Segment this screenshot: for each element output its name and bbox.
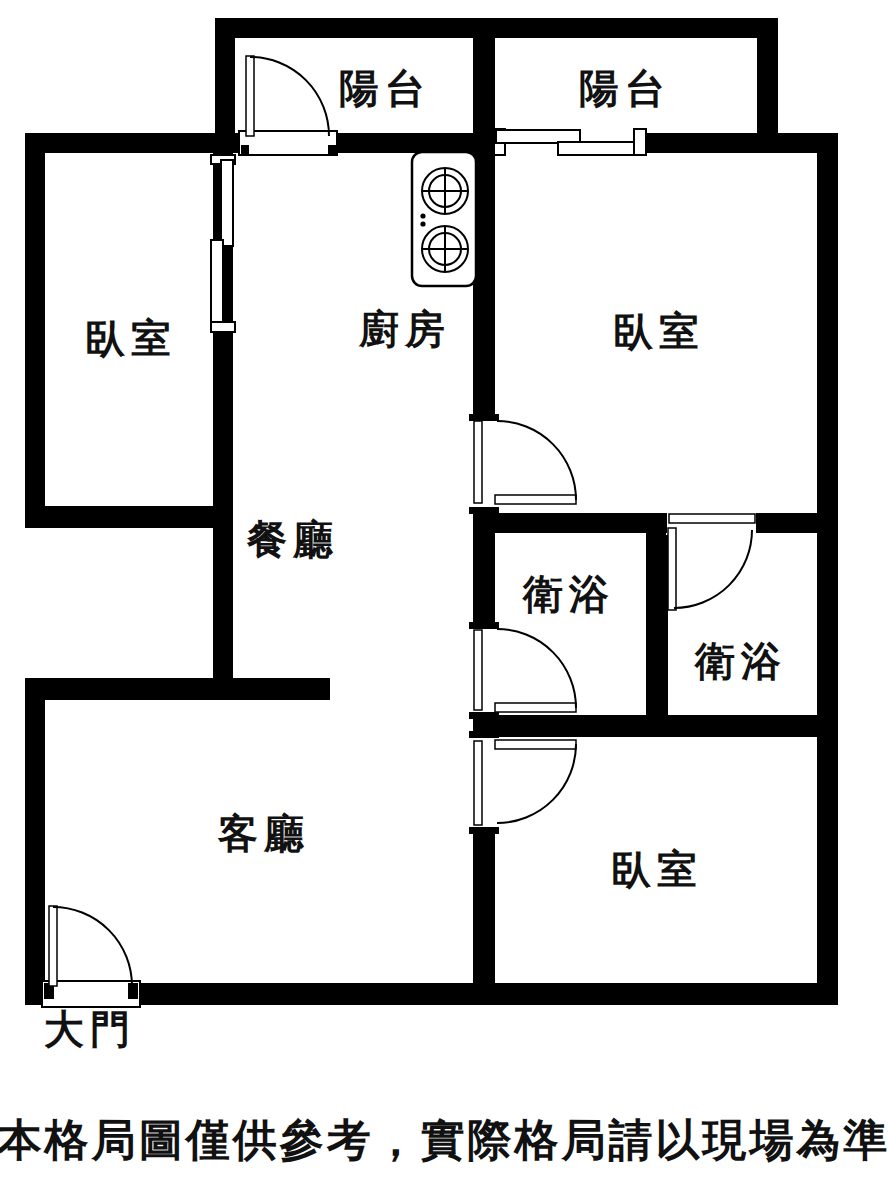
sliding-panel-upper	[221, 160, 233, 246]
label-bedroom-bottom-right: 臥室	[611, 849, 703, 889]
stove-icon	[412, 152, 476, 286]
wall-spine-d	[473, 828, 495, 983]
door-frame	[474, 421, 482, 503]
door-leaf	[495, 703, 576, 712]
disclaimer-text: 本格局圖僅供參考，實際格局請以現場為準	[0, 1118, 889, 1162]
sliding-panel-lower	[558, 142, 644, 155]
door-frame	[669, 514, 755, 523]
label-dining-room: 餐廳	[247, 519, 339, 559]
stove-burner-top	[422, 168, 468, 214]
wall-right-outer	[817, 133, 838, 1005]
door-arc	[674, 530, 752, 608]
label-balcony-1: 陽台	[339, 68, 431, 108]
balcony2-sliding-door	[494, 129, 646, 155]
label-balcony-2: 陽台	[579, 68, 671, 108]
wall-bottom-outer	[25, 983, 838, 1005]
label-bathroom-right: 衛浴	[695, 641, 787, 681]
main-door-leaf	[49, 906, 57, 986]
label-kitchen: 廚房	[359, 309, 451, 349]
door-leaf	[668, 528, 676, 610]
wall-bathrooms-top-left	[473, 513, 668, 533]
stove-knob	[420, 213, 425, 218]
wall-bedroom-topright-top	[645, 133, 838, 153]
wall-left-outer-top	[25, 133, 45, 528]
wall-balcony1-left	[215, 18, 235, 140]
balcony1-door	[239, 56, 337, 155]
door-frame	[474, 741, 482, 825]
bathroom-right-door	[660, 511, 763, 610]
wall-bathrooms-top-right	[756, 513, 838, 533]
wall-bedroom-left-top	[25, 133, 243, 153]
stove-burner-bottom	[422, 226, 468, 272]
main-door	[42, 906, 140, 1007]
wall-bedroom-left-bottom	[25, 506, 233, 528]
door-frame	[474, 630, 482, 710]
label-bedroom-left: 臥室	[85, 318, 177, 358]
label-main-door: 大門	[44, 1009, 136, 1049]
wall-left-outer-bottom	[25, 678, 45, 1005]
door-leaf	[495, 740, 576, 749]
door-arc	[497, 629, 576, 708]
balcony1-door-leaf	[246, 56, 254, 136]
wall-bathrooms-bottom	[473, 715, 838, 737]
door-arc	[497, 421, 576, 500]
wall-balcony-divider	[473, 18, 495, 153]
door-leaf	[495, 495, 576, 504]
stove-knob	[420, 221, 425, 226]
wall-top-outer	[215, 18, 778, 38]
wall-living-top-stub	[25, 678, 330, 700]
balcony1-door-arc	[250, 57, 329, 136]
floor-plan: 陽台 陽台 臥室 廚房 臥室 餐廳 衛浴 衛浴 客廳 臥室 大門 本格局圖僅供參…	[0, 0, 889, 1192]
door-arc	[497, 744, 576, 823]
label-living-room: 客廳	[218, 813, 310, 853]
label-bedroom-top-right: 臥室	[613, 311, 705, 351]
sliding-panel-lower	[211, 240, 223, 326]
wall-kitchen-top	[333, 133, 477, 153]
wall-balcony2-right	[757, 18, 778, 140]
label-bathroom-left: 衛浴	[523, 574, 615, 614]
wall-inter-bathroom	[646, 513, 668, 737]
main-door-arc	[53, 907, 132, 986]
